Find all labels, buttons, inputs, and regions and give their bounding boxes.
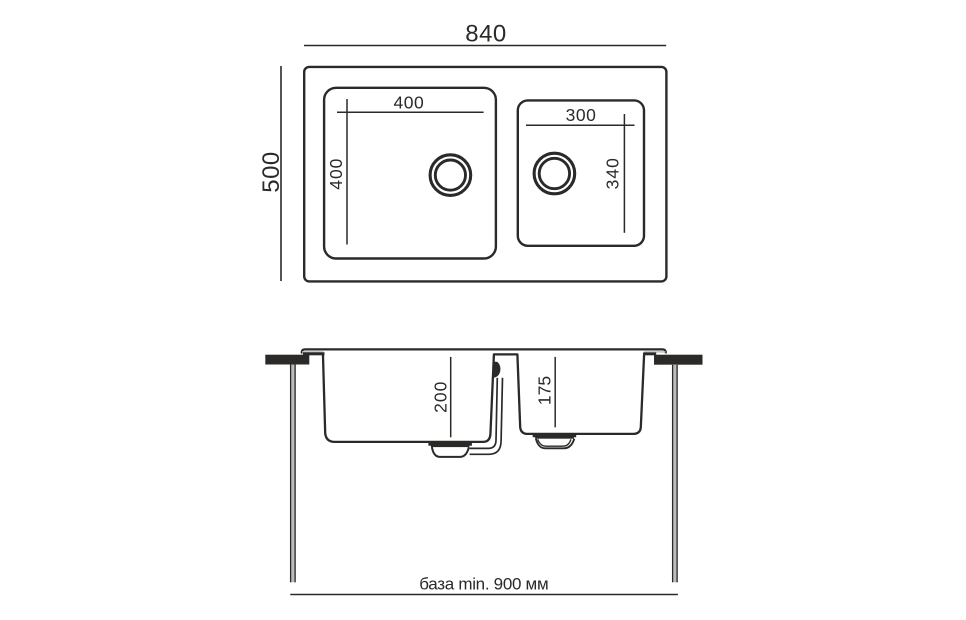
svg-text:200: 200 [430,381,450,413]
svg-text:400: 400 [394,92,425,112]
svg-text:400: 400 [326,158,346,190]
svg-text:175: 175 [535,376,555,405]
svg-text:база min. 900 мм: база min. 900 мм [419,575,548,594]
svg-text:500: 500 [258,151,285,193]
svg-text:340: 340 [602,157,622,189]
svg-text:300: 300 [566,105,597,125]
svg-text:840: 840 [465,21,507,48]
